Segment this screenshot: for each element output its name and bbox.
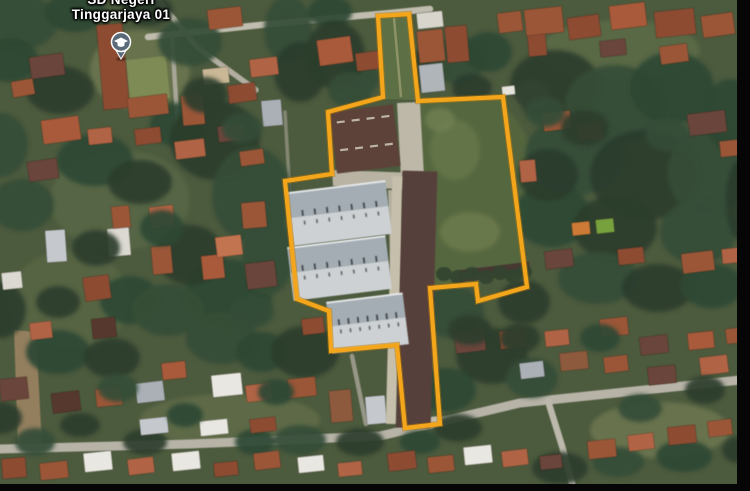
house-roof	[39, 461, 69, 481]
house-roof	[627, 432, 655, 451]
house-roof	[587, 439, 617, 460]
house-roof	[213, 461, 238, 477]
tree-canopy	[464, 267, 480, 281]
house-roof	[519, 159, 537, 182]
house-roof	[701, 12, 736, 38]
tree-canopy	[336, 428, 384, 456]
house-roof	[27, 158, 59, 182]
house-roof	[87, 127, 113, 145]
house-roof	[0, 377, 29, 402]
place-label[interactable]: SD Negeri Tinggarjaya 01	[36, 0, 206, 22]
satellite-map-view[interactable]: SD Negeri Tinggarjaya 01	[0, 0, 750, 491]
house-roof	[111, 205, 131, 229]
house-roof	[603, 355, 629, 374]
tree-canopy	[140, 210, 184, 246]
house-roof	[416, 11, 444, 30]
house-roof	[544, 248, 574, 269]
house-roof	[681, 250, 715, 274]
house-roof	[82, 274, 111, 301]
house-roof	[135, 380, 165, 403]
tree-canopy	[448, 315, 492, 345]
house-roof	[387, 450, 417, 471]
house-roof	[559, 351, 589, 372]
house-roof	[51, 390, 81, 413]
tree-canopy	[500, 323, 540, 353]
house-roof	[1, 457, 27, 479]
house-roof	[134, 126, 162, 145]
house-roof	[253, 450, 281, 470]
tree-canopy	[72, 230, 120, 266]
tree-canopy	[646, 119, 690, 151]
place-label-line1[interactable]: SD Negeri	[36, 0, 206, 7]
house-roof	[29, 53, 66, 80]
tree-canopy	[400, 430, 440, 454]
house-roof	[639, 334, 669, 355]
tree-canopy	[525, 97, 565, 127]
house-roof	[29, 321, 53, 341]
tree-canopy	[258, 379, 294, 405]
house-roof	[171, 451, 201, 472]
house-roof	[544, 329, 570, 347]
house-roof	[261, 99, 283, 127]
house-roof	[463, 445, 493, 466]
house-roof	[215, 234, 243, 257]
tree-canopy	[685, 376, 725, 404]
tree-canopy	[436, 267, 452, 281]
house-roof	[151, 245, 173, 275]
house-roof	[419, 63, 446, 93]
house-roof	[239, 148, 265, 166]
house-roof	[139, 417, 169, 436]
field-worn-patch	[440, 212, 500, 252]
house-roof	[571, 221, 590, 236]
house-roof	[161, 361, 187, 380]
house-roof	[249, 416, 277, 433]
house-roof	[127, 456, 155, 475]
house-roof	[416, 29, 445, 64]
tree-canopy	[98, 374, 138, 402]
house-roof	[699, 354, 729, 375]
house-roof	[427, 455, 455, 474]
tree-canopy	[230, 296, 274, 328]
tree-canopy	[478, 270, 494, 284]
house-roof	[707, 419, 733, 438]
house-roof	[519, 361, 545, 380]
tree-canopy	[618, 394, 662, 422]
house-roof	[329, 389, 354, 423]
tree-canopy	[183, 77, 227, 113]
right-letterbox-bar	[737, 0, 750, 491]
place-label-line2[interactable]: Tinggarjaya 01	[36, 7, 206, 22]
house-roof	[211, 372, 243, 397]
house-roof	[297, 455, 325, 474]
house-roof	[687, 110, 727, 136]
house-roof	[227, 82, 257, 104]
tree-canopy	[580, 324, 620, 352]
house-roof	[11, 78, 35, 98]
house-roof	[174, 138, 206, 160]
house-roof	[337, 461, 362, 477]
house-roof	[1, 271, 23, 290]
house-roof	[687, 331, 715, 351]
house-roof	[539, 454, 562, 470]
concrete-yard	[397, 102, 424, 179]
house-roof	[647, 365, 677, 386]
bottom-letterbox-bar	[0, 484, 750, 491]
house-roof	[567, 14, 602, 40]
house-roof	[201, 254, 225, 280]
house-roof	[241, 201, 267, 229]
tree-canopy	[36, 286, 80, 318]
tree-canopy	[656, 440, 712, 472]
field-worn-patch	[425, 108, 455, 132]
tree-canopy	[60, 413, 100, 437]
house-roof	[654, 8, 696, 38]
house-roof	[301, 317, 325, 336]
house-roof	[249, 56, 279, 77]
house-roof	[595, 218, 614, 234]
house-roof	[207, 6, 243, 30]
house-roof	[667, 425, 697, 446]
school-building-old-wing	[329, 104, 400, 173]
house-roof	[497, 11, 523, 34]
house-roof	[199, 419, 228, 437]
tree-canopy	[108, 160, 172, 204]
house-roof	[659, 43, 689, 65]
house-roof	[609, 2, 648, 30]
house-roof	[316, 36, 353, 66]
house-roof	[83, 451, 113, 473]
tree-canopy	[274, 425, 326, 455]
house-roof	[355, 51, 381, 72]
house-roof	[245, 260, 278, 289]
tree-canopy	[561, 110, 609, 146]
house-roof	[617, 247, 645, 266]
house-roof	[501, 448, 529, 467]
house-roof	[444, 25, 469, 63]
tree-canopy	[15, 428, 55, 456]
tree-canopy	[222, 113, 262, 143]
house-roof	[599, 39, 627, 58]
house-roof	[524, 6, 565, 36]
house-roof	[45, 229, 67, 262]
house-roof	[365, 395, 387, 425]
house-roof	[41, 115, 82, 144]
tree-canopy	[84, 338, 140, 378]
satellite-imagery[interactable]	[0, 0, 750, 491]
tree-canopy	[464, 32, 512, 72]
tree-canopy	[167, 403, 203, 427]
house-roof	[91, 317, 117, 339]
